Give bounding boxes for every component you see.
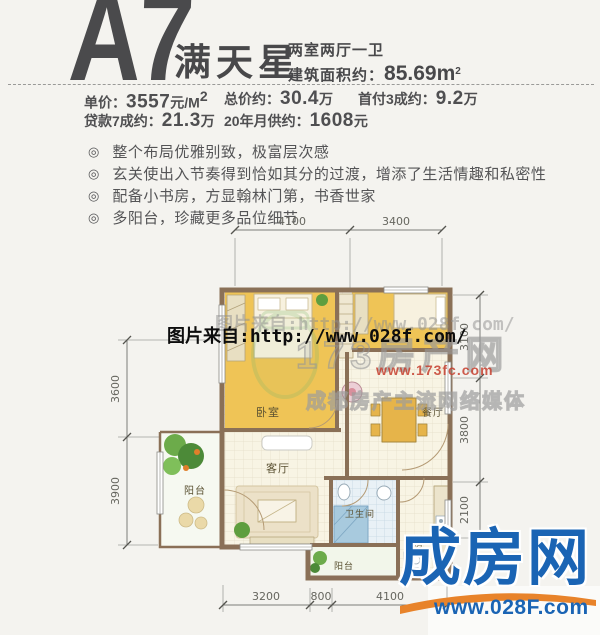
dim-bottom-2: 800 [311, 590, 332, 603]
dim-bottom-1: 3200 [252, 590, 280, 603]
dim-top-2: 3400 [382, 215, 410, 228]
dim-right-3: 2100 [458, 496, 471, 524]
watermark-slogan: 成都房产主流网络媒体 [306, 385, 526, 414]
room-label-bathroom: 卫生间 [345, 508, 375, 519]
watermark-site-url: www.173fc.com [376, 362, 494, 378]
dim-right-2: 3800 [458, 416, 471, 444]
flyer-page: A7 满天星 两室两厅一卫 建筑面积约：85.69m2 单价：3557元/M2 … [0, 0, 600, 635]
dim-left-2: 3900 [109, 477, 122, 505]
room-label-balcony-left: 阳台 [184, 484, 206, 497]
watermark-photo-source: 图片来自:http://www.028f.com/ [167, 322, 467, 348]
room-label-living: 客厅 [266, 461, 290, 475]
dim-top-1: 4100 [278, 215, 306, 228]
room-label-bedroom: 卧室 [256, 405, 280, 419]
site-logo-url: www.028F.com [434, 596, 589, 620]
dim-left-1: 3600 [109, 375, 122, 403]
room-label-balcony-bottom: 阳台 [334, 560, 354, 571]
